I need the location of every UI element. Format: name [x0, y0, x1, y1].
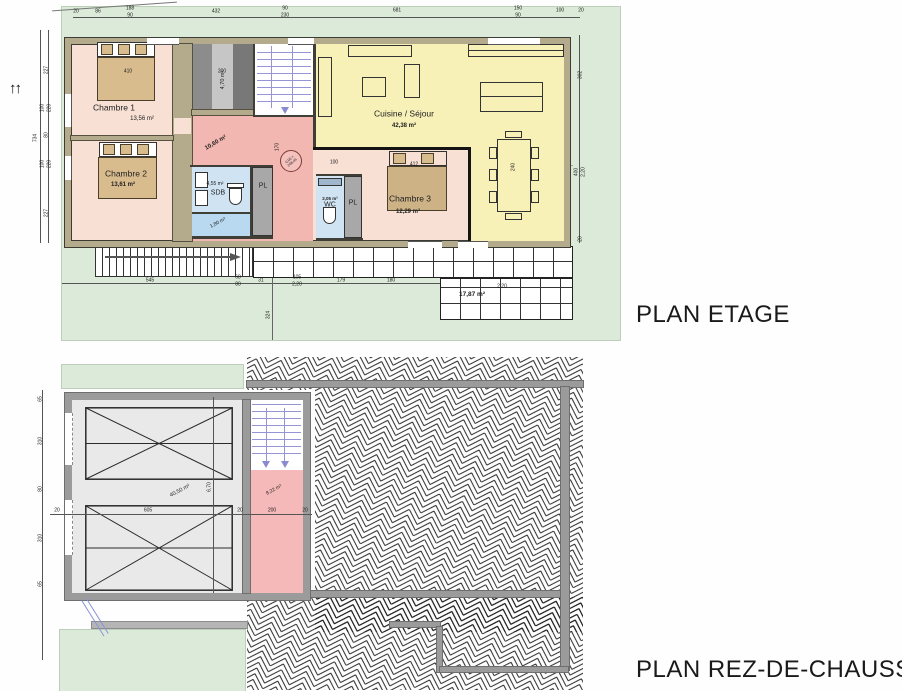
dim-label: 170 [276, 143, 281, 151]
dim-label: 20 [73, 10, 79, 15]
chambre2-area-label: 13,61 m² [111, 182, 135, 188]
dim-label: 2,20 [582, 167, 587, 177]
dim-line-left-outer [40, 30, 41, 243]
grass-area-rdc-top [62, 365, 243, 388]
wall-sdb-mid [192, 212, 250, 214]
window-opening [288, 38, 314, 45]
chambre3-area-label: 12,29 m² [396, 209, 420, 215]
sdb-name-label: SDB [211, 189, 225, 198]
sdb-area-label: 4,55 m² [207, 181, 224, 187]
chair [505, 213, 522, 220]
plan-etage-title: PLAN ETAGE [636, 301, 790, 329]
stair-rail-2 [292, 46, 293, 108]
bed-pillow [135, 44, 147, 55]
toilet-icon [229, 188, 242, 205]
chair [531, 191, 539, 203]
window-opening [65, 94, 72, 127]
dim-label: 400 [575, 168, 580, 176]
stair-rail-2 [284, 408, 285, 464]
wall-chambre3-top [313, 147, 471, 150]
stairs-rdc [252, 402, 301, 460]
terrace-area-label: 17,87 m² [459, 292, 485, 298]
dim-label: 2,20 [497, 285, 507, 290]
toilet-icon [323, 207, 336, 224]
stair-arrow-icon [281, 461, 289, 468]
dim-label: 302 [579, 71, 584, 79]
bed-pillow [118, 44, 130, 55]
dim-label: 230 [281, 14, 289, 19]
dim-label: 86 [95, 10, 101, 15]
dim-label: 105 [293, 276, 301, 281]
bed-pillow [137, 144, 149, 155]
wall-sdb-bottom [192, 236, 273, 239]
wall-column [173, 44, 192, 241]
wall-closet-bottom [192, 110, 253, 115]
sofa [348, 45, 412, 57]
stair-rail-1 [271, 46, 272, 108]
closet-stripe-1 [192, 44, 212, 110]
bed-pillow [421, 153, 434, 164]
garage-door-opening [65, 500, 73, 555]
dim-label: 20 [237, 509, 243, 514]
dim-label: 324 [267, 311, 272, 319]
dim-label: 6,70 [208, 482, 213, 492]
counter-line [469, 50, 563, 51]
wall-stairs-left [253, 44, 255, 116]
wall-rdc-right [561, 387, 569, 670]
bed-chambre1 [97, 57, 155, 101]
chambre3-name-label: Chambre 3 [389, 195, 431, 204]
dim-label: 200 [218, 70, 226, 75]
dim-label: 310 [39, 437, 44, 445]
dim-label: 31 [258, 279, 264, 284]
dim-label: 65 [39, 581, 44, 587]
chair [505, 131, 522, 138]
dim-label: 220 [48, 160, 53, 168]
armchair [404, 64, 420, 98]
dim-label: 240 [512, 163, 517, 171]
dim-label: 545 [146, 279, 154, 284]
window-opening [488, 38, 540, 45]
chambre1-name-label: Chambre 1 [93, 104, 135, 113]
dim-label: 220 [48, 104, 53, 112]
parking-spot-2 [85, 505, 233, 591]
dim-line-rdc-mid [50, 514, 312, 515]
chair [489, 191, 497, 203]
parking-spot-1 [85, 407, 233, 480]
dim-label: 100 [556, 9, 564, 14]
garage-door-opening [65, 413, 73, 465]
room-pl1 [252, 167, 273, 236]
deck-arrow-head-icon [230, 253, 241, 261]
terrace-grid-upper [253, 246, 573, 278]
dim-label: 100 [41, 104, 46, 112]
dim-line-top [73, 17, 580, 18]
dim-label: 20 [578, 9, 584, 14]
dim-label: 65 [39, 396, 44, 402]
dim-label: 188 [126, 7, 134, 12]
dim-label: 80 [39, 486, 44, 492]
dim-label: 605 [144, 509, 152, 514]
level-marker: 0,00 = 208,45 [280, 150, 302, 172]
chair [531, 169, 539, 181]
stairs-etage [257, 46, 311, 108]
dim-label: 227 [45, 66, 50, 74]
wall-step-v [437, 627, 442, 672]
dim-label: 180 [387, 279, 395, 284]
dining-table [497, 139, 531, 212]
window-opening [458, 241, 488, 248]
chair [489, 147, 497, 159]
deck-planks [95, 247, 253, 277]
chambre1-area-label: 13,56 m² [130, 116, 154, 122]
dim-label: 200 [268, 509, 276, 514]
deck-arrow [105, 256, 233, 258]
wall-step-h1 [390, 622, 440, 627]
bed-pillow [393, 153, 406, 164]
bed-pillow [103, 144, 115, 155]
dim-label: 227 [45, 209, 50, 217]
dim-label: 412 [410, 163, 418, 168]
pl1-label: PL [259, 182, 268, 191]
wall-rdc-top-band [247, 381, 583, 387]
wall-step-h2 [440, 667, 568, 672]
dim-label: 20 [54, 509, 60, 514]
dim-line-rdc-left [42, 390, 43, 660]
island-line [481, 96, 542, 97]
cuisine-area-label: 42,38 m² [392, 123, 416, 129]
dim-label: 100 [41, 160, 46, 168]
wall-rdc-bottom-band [310, 591, 567, 597]
bed-pillow [101, 44, 113, 55]
dim-label: 90 [515, 14, 521, 19]
dim-label: 734 [34, 134, 39, 142]
wall-wc-bottom [316, 238, 363, 241]
dim-label: 150 [514, 7, 522, 12]
sofa-vertical [318, 57, 332, 117]
dim-label: 410 [124, 70, 132, 75]
terrace-edge [92, 622, 247, 628]
dim-label: 80 [235, 283, 241, 288]
grass-area-rdc-bottom [60, 630, 245, 691]
dim-label: 681 [393, 9, 401, 14]
wc-sink [318, 178, 342, 186]
chambre2-name-label: Chambre 2 [105, 170, 147, 179]
chair [531, 147, 539, 159]
dim-label: 100 [330, 161, 338, 166]
bed-pillow [120, 144, 132, 155]
chair [489, 169, 497, 181]
wall-ch1-ch2 [71, 136, 173, 140]
plan-rdc-title: PLAN REZ-DE-CHAUSSEE [636, 656, 902, 684]
stair-arrow-icon [262, 461, 270, 468]
dim-label: 90 [282, 7, 288, 12]
wall-chambre3-right [468, 150, 471, 241]
floor-plan-sheet: ↑↑ 17,87 m² 4,70 m² [0, 0, 902, 691]
dim-label: 20 [579, 236, 584, 242]
dim-label: 20 [302, 509, 308, 514]
wall-garage-stair [243, 400, 250, 593]
window-opening [65, 156, 72, 180]
orientation-arrows-icon: ↑↑ [9, 80, 20, 97]
wall-stairs-bottom [253, 115, 313, 117]
dim-label: 179 [337, 279, 345, 284]
cuisine-name-label: Cuisine / Séjour [374, 110, 434, 119]
pl2-label: PL [349, 199, 358, 208]
dim-label: 80 [45, 132, 50, 138]
dim-line-garage-v [213, 397, 214, 593]
coffee-table [362, 77, 386, 97]
dim-line-right [579, 35, 580, 243]
sink-icon [195, 190, 208, 206]
bed-chambre3 [387, 166, 447, 211]
dim-label: 68 [235, 276, 241, 281]
dim-label: 432 [212, 10, 220, 15]
wall-hall-cuisine [313, 44, 316, 147]
stair-arrow-icon [281, 107, 289, 114]
dim-label: 2,20 [292, 283, 302, 288]
closet-stripe-3 [233, 44, 253, 110]
kitchen-island [480, 82, 543, 112]
wall-wc-top [316, 174, 362, 176]
wc-name-label: WC [324, 201, 336, 210]
door-opening [174, 118, 191, 134]
dim-label: 310 [39, 534, 44, 542]
window-opening [147, 38, 179, 45]
stair-rail-1 [266, 408, 267, 464]
window-opening [408, 241, 442, 248]
dim-label: 90 [127, 14, 133, 19]
